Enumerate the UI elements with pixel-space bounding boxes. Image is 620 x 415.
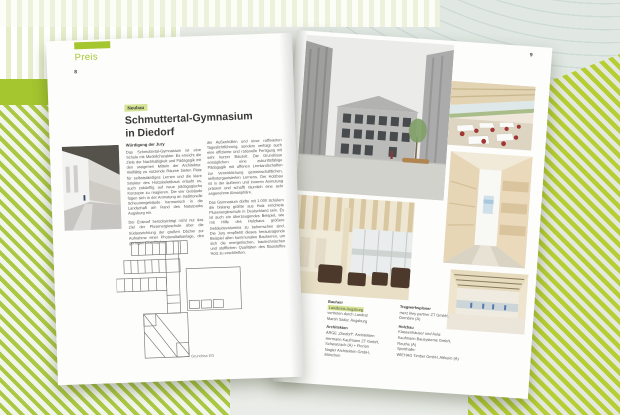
floor-plan-caption: Grundriss EG [191, 354, 214, 359]
category-tag: Neubau [124, 104, 147, 112]
background-top-stripe-band [0, 0, 440, 27]
brochure-right-page: 9 [272, 30, 552, 399]
page-number-right: 9 [530, 52, 533, 58]
photo-timber-corridor [443, 151, 533, 268]
person [83, 195, 85, 201]
project-credits: Bauherr Landkreis Augsburg vertreten dur… [324, 299, 480, 368]
article-headline-block: Neubau Schmuttertal-Gymnasium in Diedorf [124, 91, 290, 141]
credits-column-left: Bauherr Landkreis Augsburg vertreten dur… [324, 299, 390, 362]
article-title: Schmuttertal-Gymnasium in Diedorf [125, 109, 291, 141]
page-number-left: 8 [74, 69, 77, 75]
jury-paragraph: der Außenhüllen und einer raffinierten T… [207, 137, 284, 196]
brochure-left-page: Preis 8 Neubau Schmuttertal-Gymnasium in… [46, 33, 304, 385]
section-color-bar [74, 41, 110, 49]
far-window [483, 195, 494, 214]
credits-column-right: Tragwerksplaner merz kley partner ZT Gmb… [396, 304, 480, 368]
photo-of-brochure-spread: { "colors": { "brand_green": "#a5c62f", … [0, 0, 620, 415]
floor-plan-drawing [115, 232, 255, 361]
jury-paragraph: Das Schmuttertal-Gymnasium ist eine Schu… [126, 147, 203, 216]
photo-courtyard-exterior [296, 35, 455, 201]
photo-lounge-interior [291, 194, 416, 300]
section-label: Preis [74, 52, 98, 64]
photo-classroom-interior [447, 81, 535, 151]
photo-covered-walkway [62, 145, 122, 231]
